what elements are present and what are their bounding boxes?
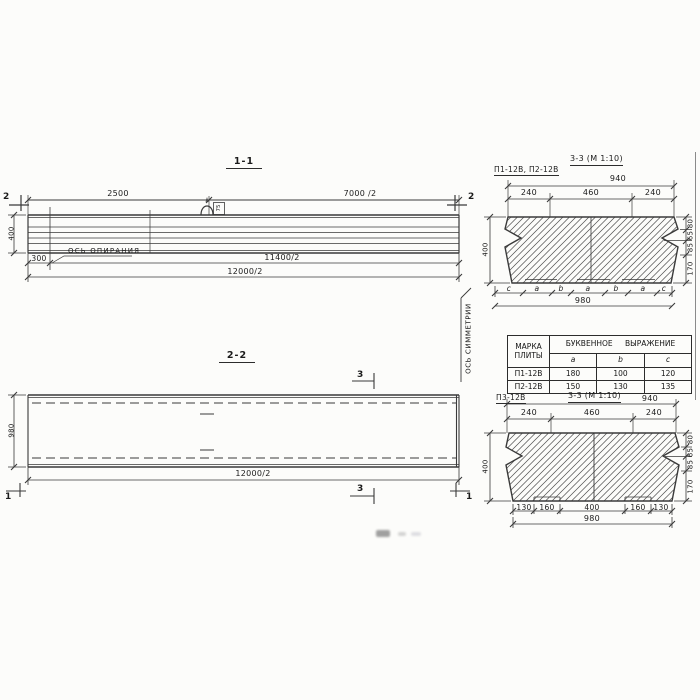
cs-bottom-title: 3-3 (М 1:10) xyxy=(568,391,621,403)
section-1-1-title: 1-1 xyxy=(226,157,262,169)
cut-mark-3-top: 3 xyxy=(357,370,364,380)
cs-bottom-label: П3-12В xyxy=(496,393,526,404)
hatched-slab-body xyxy=(505,217,678,283)
drawing-sheet: 1-1 2 2 2500 7000 /2 400 300 ОСЬ ОПИРАНИ… xyxy=(0,0,700,700)
cs-top-letter-b2: b xyxy=(608,284,624,293)
cs-top-letter-a3: a xyxy=(635,284,651,293)
section-2-2-title: 2-2 xyxy=(219,351,255,363)
cs-bottom-dim-460: 460 xyxy=(574,408,610,418)
cut-mark-3-bottom: 3 xyxy=(357,484,364,494)
table-cell-mark: П2-12В xyxy=(508,381,550,394)
hatched-slab-body xyxy=(506,433,679,501)
cs-top-dim-240b: 240 xyxy=(635,188,671,198)
table-subcol-b: b xyxy=(597,354,645,368)
cs-top-label: П1-12В, П2-12В xyxy=(494,165,559,176)
table-subcol-c: c xyxy=(645,354,692,368)
cs-bottom-dim-170: 170 xyxy=(687,474,696,498)
cs-top-letter-a2: a xyxy=(580,284,596,293)
scan-smudge xyxy=(398,532,406,536)
cs-top-letter-c1: c xyxy=(501,284,517,293)
cs-top-dim-940: 940 xyxy=(600,174,636,184)
dim-300: 300 xyxy=(26,254,52,263)
cs-top-letter-a1: a xyxy=(529,284,545,293)
table-cell-b: 100 xyxy=(597,368,645,381)
loop-dim-75: 75 xyxy=(216,201,222,215)
table-cell-a: 180 xyxy=(550,368,597,381)
cs-bottom-dim-85: 85 xyxy=(687,453,696,477)
dim-400-s1: 400 xyxy=(8,216,17,252)
table-header-expression: БУКВЕННОЕ ВЫРАЖЕНИЕ xyxy=(550,336,692,354)
cut-mark-1-right: 1 xyxy=(466,492,473,502)
table-subcol-a: a xyxy=(550,354,597,368)
cs-top-letter-b1: b xyxy=(553,284,569,293)
cs-top-dim-980: 980 xyxy=(563,296,603,306)
cs-top-title: 3-3 (М 1:10) xyxy=(570,154,623,166)
cs-bottom-dim-400b: 400 xyxy=(578,503,606,512)
table-cell-c: 120 xyxy=(645,368,692,381)
cs-bottom-dim-130b: 130 xyxy=(647,503,675,512)
cs-bottom-dim-400: 400 xyxy=(482,449,491,485)
cut-mark-2-left: 2 xyxy=(3,192,10,202)
cs-top-dim-400: 400 xyxy=(482,232,491,268)
symmetry-axis-label: ОСЬ СИММЕТРИИ xyxy=(465,296,474,382)
scan-smudge xyxy=(376,530,390,537)
cs-top-dim-460: 460 xyxy=(573,188,609,198)
cut-mark-1-left: 1 xyxy=(5,492,12,502)
plate-parameters-table: МАРКА ПЛИТЫ БУКВЕННОЕ ВЫРАЖЕНИЕ a b c П1… xyxy=(507,335,692,394)
table-cell-mark: П1-12В xyxy=(508,368,550,381)
cs-top-letter-c2: c xyxy=(656,284,672,293)
cut-mark-2-right: 2 xyxy=(468,192,475,202)
table-row: П1-12В 180 100 120 xyxy=(508,368,692,381)
cs-bottom-dim-980: 980 xyxy=(572,514,612,524)
cs-top-dim-240a: 240 xyxy=(511,188,547,198)
dim-11400-2: 11400/2 xyxy=(250,253,314,263)
support-axis-label: ОСЬ ОПИРАНИЯ xyxy=(68,247,140,256)
dim-12000-2-s2: 12000/2 xyxy=(221,469,285,479)
table-header-mark: МАРКА ПЛИТЫ xyxy=(508,336,550,368)
dim-2500: 2500 xyxy=(96,189,140,199)
cs-bottom-dim-240b: 240 xyxy=(636,408,672,418)
cs-bottom-dim-160a: 160 xyxy=(533,503,561,512)
cs-top-dim-170: 170 xyxy=(687,257,696,281)
dim-980-s2: 980 xyxy=(8,413,17,449)
dim-7000-2: 7000 /2 xyxy=(330,189,390,199)
cs-bottom-dim-940: 940 xyxy=(632,394,668,404)
dim-12000-2-s1: 12000/2 xyxy=(213,267,277,277)
table-cell-c: 135 xyxy=(645,381,692,394)
scan-smudge xyxy=(411,532,421,536)
cs-bottom-dim-240a: 240 xyxy=(511,408,547,418)
